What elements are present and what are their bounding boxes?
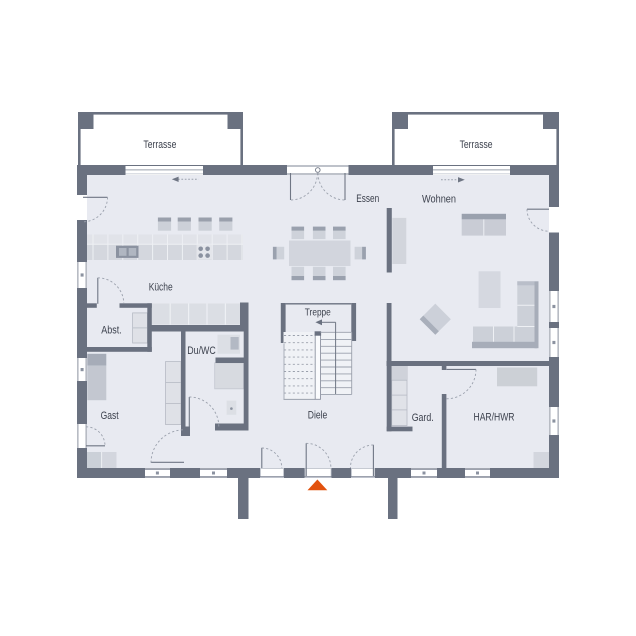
svg-text:Küche: Küche (149, 282, 173, 294)
svg-text:Abst.: Abst. (101, 325, 122, 337)
svg-text:Treppe: Treppe (305, 308, 331, 319)
svg-text:Gard.: Gard. (412, 412, 434, 424)
svg-text:HAR/HWR: HAR/HWR (474, 412, 515, 424)
svg-text:Wohnen: Wohnen (422, 193, 456, 205)
svg-text:Terrasse: Terrasse (143, 139, 176, 151)
svg-text:Gast: Gast (101, 410, 120, 422)
svg-text:Du/WC: Du/WC (187, 345, 216, 357)
svg-text:Essen: Essen (356, 193, 379, 205)
svg-text:Terrasse: Terrasse (460, 139, 493, 151)
svg-text:Diele: Diele (308, 409, 328, 421)
